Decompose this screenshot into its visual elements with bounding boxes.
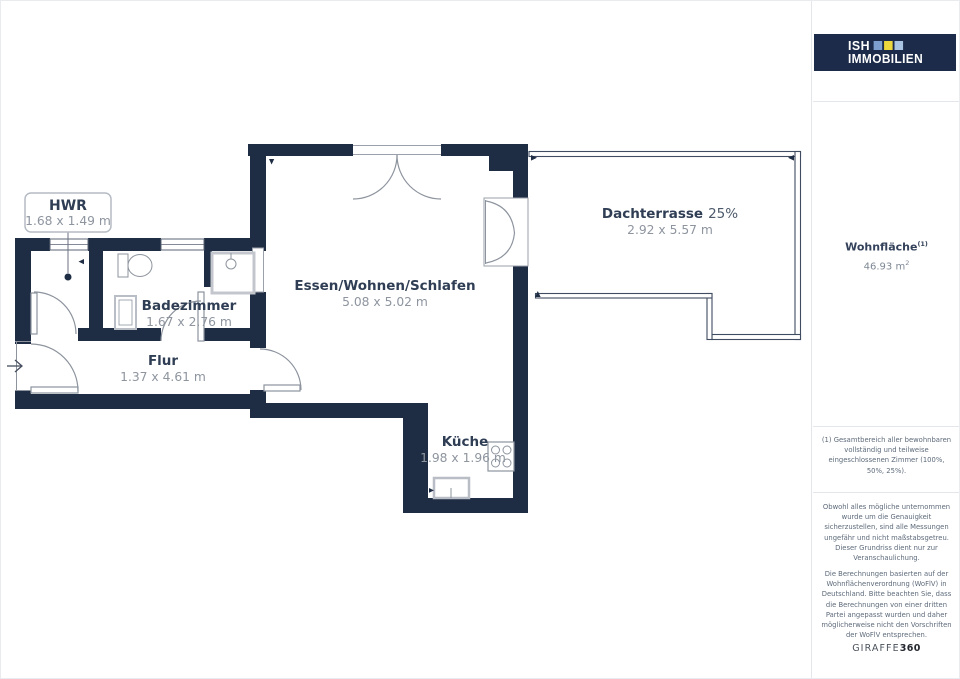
sidebar-divider [813, 101, 960, 102]
room-dims-badezimmer: 1.67 x 2.76 m [146, 315, 232, 329]
room-label-flur: Flur [148, 353, 178, 369]
accuracy-disclaimer: Obwohl alles mögliche unternommen wurde … [819, 502, 954, 563]
logo-word-immobilien: IMMOBILIEN [847, 53, 922, 66]
logo-square-yellow [884, 41, 893, 50]
room-dims-hwr: 1.68 x 1.49 m [25, 214, 111, 228]
room-label-hwr: HWR [49, 198, 87, 214]
logo-word-ish: ISH [847, 40, 869, 51]
footnote-text: (1) Gesamtbereich aller bewohnbaren voll… [819, 435, 954, 476]
terrace-railing [529, 152, 801, 340]
living-area-summary: Wohnfläche(1) 46.93 m2 [812, 240, 960, 272]
dachterrasse-share: 25% [708, 206, 738, 222]
room-label-wohnen: Essen/Wohnen/Schlafen [294, 278, 475, 294]
footnote-reference: (1) [917, 240, 927, 248]
room-dims-dachterrasse: 2.92 x 5.57 m [627, 223, 713, 237]
room-label-badezimmer: Badezimmer [142, 298, 237, 314]
giraffe360-brand: GIRAFFE360 [812, 643, 960, 654]
living-area-unit-sup: 2 [905, 259, 909, 267]
room-dims-kueche: 1.98 x 1.96 m [420, 451, 506, 465]
leader-dot [65, 274, 72, 281]
toilet-fixture [118, 254, 152, 277]
shower-fixture [212, 253, 254, 293]
room-label-kueche: Küche [442, 434, 489, 450]
floorplan-page: HWR 1.68 x 1.49 m Badezimmer 1.67 x 2.76… [0, 0, 960, 679]
sidebar-divider [813, 426, 960, 427]
agency-logo: ISH IMMOBILIEN [814, 34, 956, 71]
room-label-dachterrasse: Dachterrasse25% [602, 206, 738, 222]
room-dims-wohnen: 5.08 x 5.02 m [342, 295, 428, 309]
living-area-value: 46.93 m2 [812, 259, 960, 272]
vanity-fixture [115, 296, 136, 329]
brand-name: GIRAFFE [852, 643, 900, 654]
logo-square-lightblue [894, 41, 903, 50]
living-area-number: 46.93 m [864, 261, 906, 272]
dachterrasse-name: Dachterrasse [602, 206, 703, 222]
brand-number: 360 [900, 643, 921, 654]
calculation-disclaimer: Die Berechnungen basierten auf der Wohnf… [819, 569, 954, 640]
living-area-label-text: Wohnfläche [845, 241, 917, 254]
room-dims-flur: 1.37 x 4.61 m [120, 370, 206, 384]
logo-square-blue [873, 41, 882, 50]
living-area-label: Wohnfläche(1) [812, 240, 960, 254]
agency-logo-text: ISH IMMOBILIEN [847, 40, 922, 66]
sidebar-divider [813, 492, 960, 493]
entry-arrow-icon [7, 360, 22, 372]
kitchen-sink-fixture [434, 478, 469, 498]
floorplan-drawing: HWR 1.68 x 1.49 m Badezimmer 1.67 x 2.76… [1, 1, 811, 679]
info-sidebar: ISH IMMOBILIEN Wohnfläche(1) 46.93 m2 (1… [811, 1, 960, 679]
